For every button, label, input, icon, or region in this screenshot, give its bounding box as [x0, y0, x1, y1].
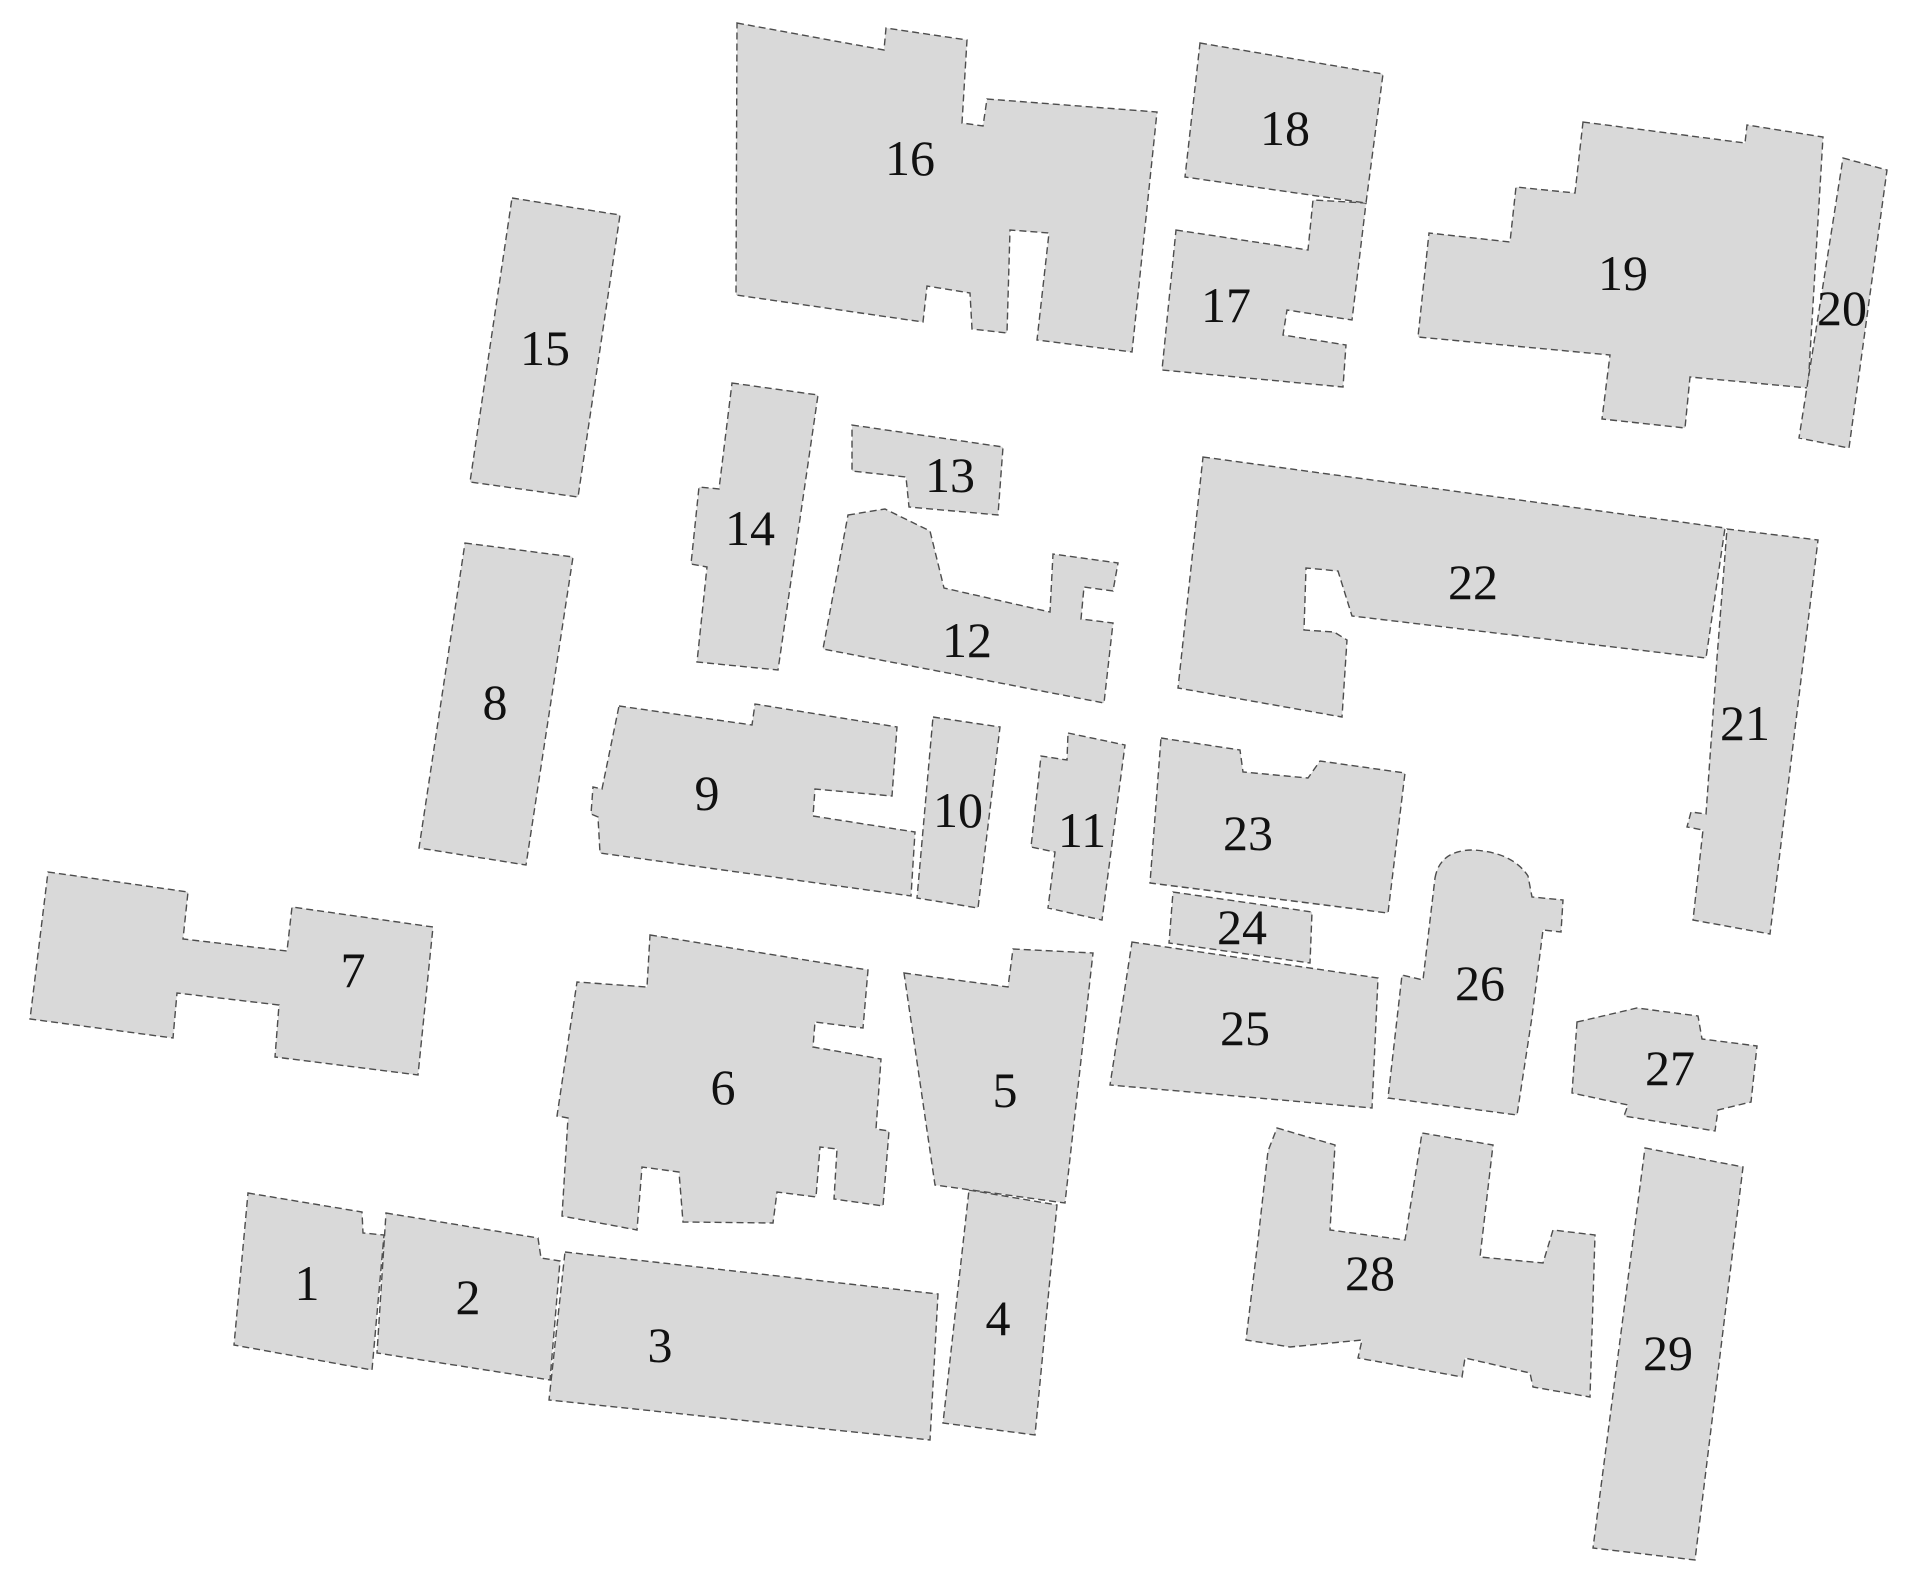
- building-12: 12: [823, 509, 1118, 703]
- building-27-label: 27: [1645, 1040, 1695, 1096]
- building-9-footprint: [591, 704, 915, 896]
- building-15-label: 15: [520, 320, 570, 376]
- building-12-footprint: [823, 509, 1118, 703]
- building-11: 11: [1031, 733, 1125, 920]
- building-23-label: 23: [1223, 805, 1273, 861]
- building-8-label: 8: [483, 674, 508, 730]
- building-16: 16: [736, 23, 1157, 352]
- building-9: 9: [591, 704, 915, 896]
- building-14-label: 14: [725, 500, 775, 556]
- building-3: 3: [549, 1252, 938, 1440]
- building-11-label: 11: [1058, 802, 1106, 858]
- building-10-label: 10: [933, 782, 983, 838]
- building-27: 27: [1572, 1008, 1757, 1131]
- building-17-footprint: [1162, 200, 1366, 387]
- building-9-label: 9: [695, 765, 720, 821]
- building-26-label: 26: [1455, 955, 1505, 1011]
- building-28: 28: [1246, 1128, 1595, 1397]
- building-22-label: 22: [1448, 554, 1498, 610]
- building-7: 7: [30, 872, 433, 1075]
- building-10: 10: [917, 717, 1000, 908]
- building-2: 2: [377, 1213, 560, 1380]
- building-7-label: 7: [341, 942, 366, 998]
- building-19-label: 19: [1598, 245, 1648, 301]
- building-16-footprint: [736, 23, 1157, 352]
- building-25: 25: [1110, 942, 1378, 1108]
- building-15: 15: [470, 198, 620, 497]
- building-25-label: 25: [1220, 1000, 1270, 1056]
- building-19: 19: [1418, 122, 1823, 428]
- building-29-label: 29: [1643, 1325, 1693, 1381]
- building-20-label: 20: [1817, 280, 1867, 336]
- building-28-footprint: [1246, 1128, 1595, 1397]
- building-29: 29: [1593, 1148, 1743, 1560]
- building-1-label: 1: [295, 1255, 320, 1311]
- building-14: 14: [691, 383, 818, 670]
- building-6: 6: [557, 935, 889, 1230]
- building-7-footprint: [30, 872, 433, 1075]
- building-13-label: 13: [925, 447, 975, 503]
- building-23-footprint: [1150, 738, 1405, 913]
- building-16-label: 16: [885, 130, 935, 186]
- building-3-label: 3: [648, 1317, 673, 1373]
- building-17-label: 17: [1201, 277, 1251, 333]
- building-13: 13: [852, 425, 1003, 515]
- building-4-label: 4: [986, 1290, 1011, 1346]
- building-4: 4: [943, 1190, 1057, 1435]
- building-3-footprint: [549, 1252, 938, 1440]
- building-5-label: 5: [993, 1062, 1018, 1118]
- campus-map-svg: 1234567891011121314151617181920212223242…: [0, 0, 1929, 1589]
- building-24-label: 24: [1217, 899, 1267, 955]
- building-1: 1: [234, 1193, 384, 1370]
- building-28-label: 28: [1345, 1245, 1395, 1301]
- building-21-label: 21: [1720, 695, 1770, 751]
- building-8: 8: [419, 543, 573, 865]
- building-6-label: 6: [711, 1059, 736, 1115]
- building-22: 22: [1178, 457, 1725, 717]
- building-5: 5: [904, 949, 1093, 1203]
- building-2-label: 2: [456, 1269, 481, 1325]
- building-18: 18: [1185, 43, 1383, 203]
- building-12-label: 12: [942, 612, 992, 668]
- building-26: 26: [1388, 850, 1563, 1115]
- building-18-label: 18: [1260, 100, 1310, 156]
- building-23: 23: [1150, 738, 1405, 913]
- building-footprint-map: 1234567891011121314151617181920212223242…: [0, 0, 1929, 1589]
- building-17: 17: [1162, 200, 1366, 387]
